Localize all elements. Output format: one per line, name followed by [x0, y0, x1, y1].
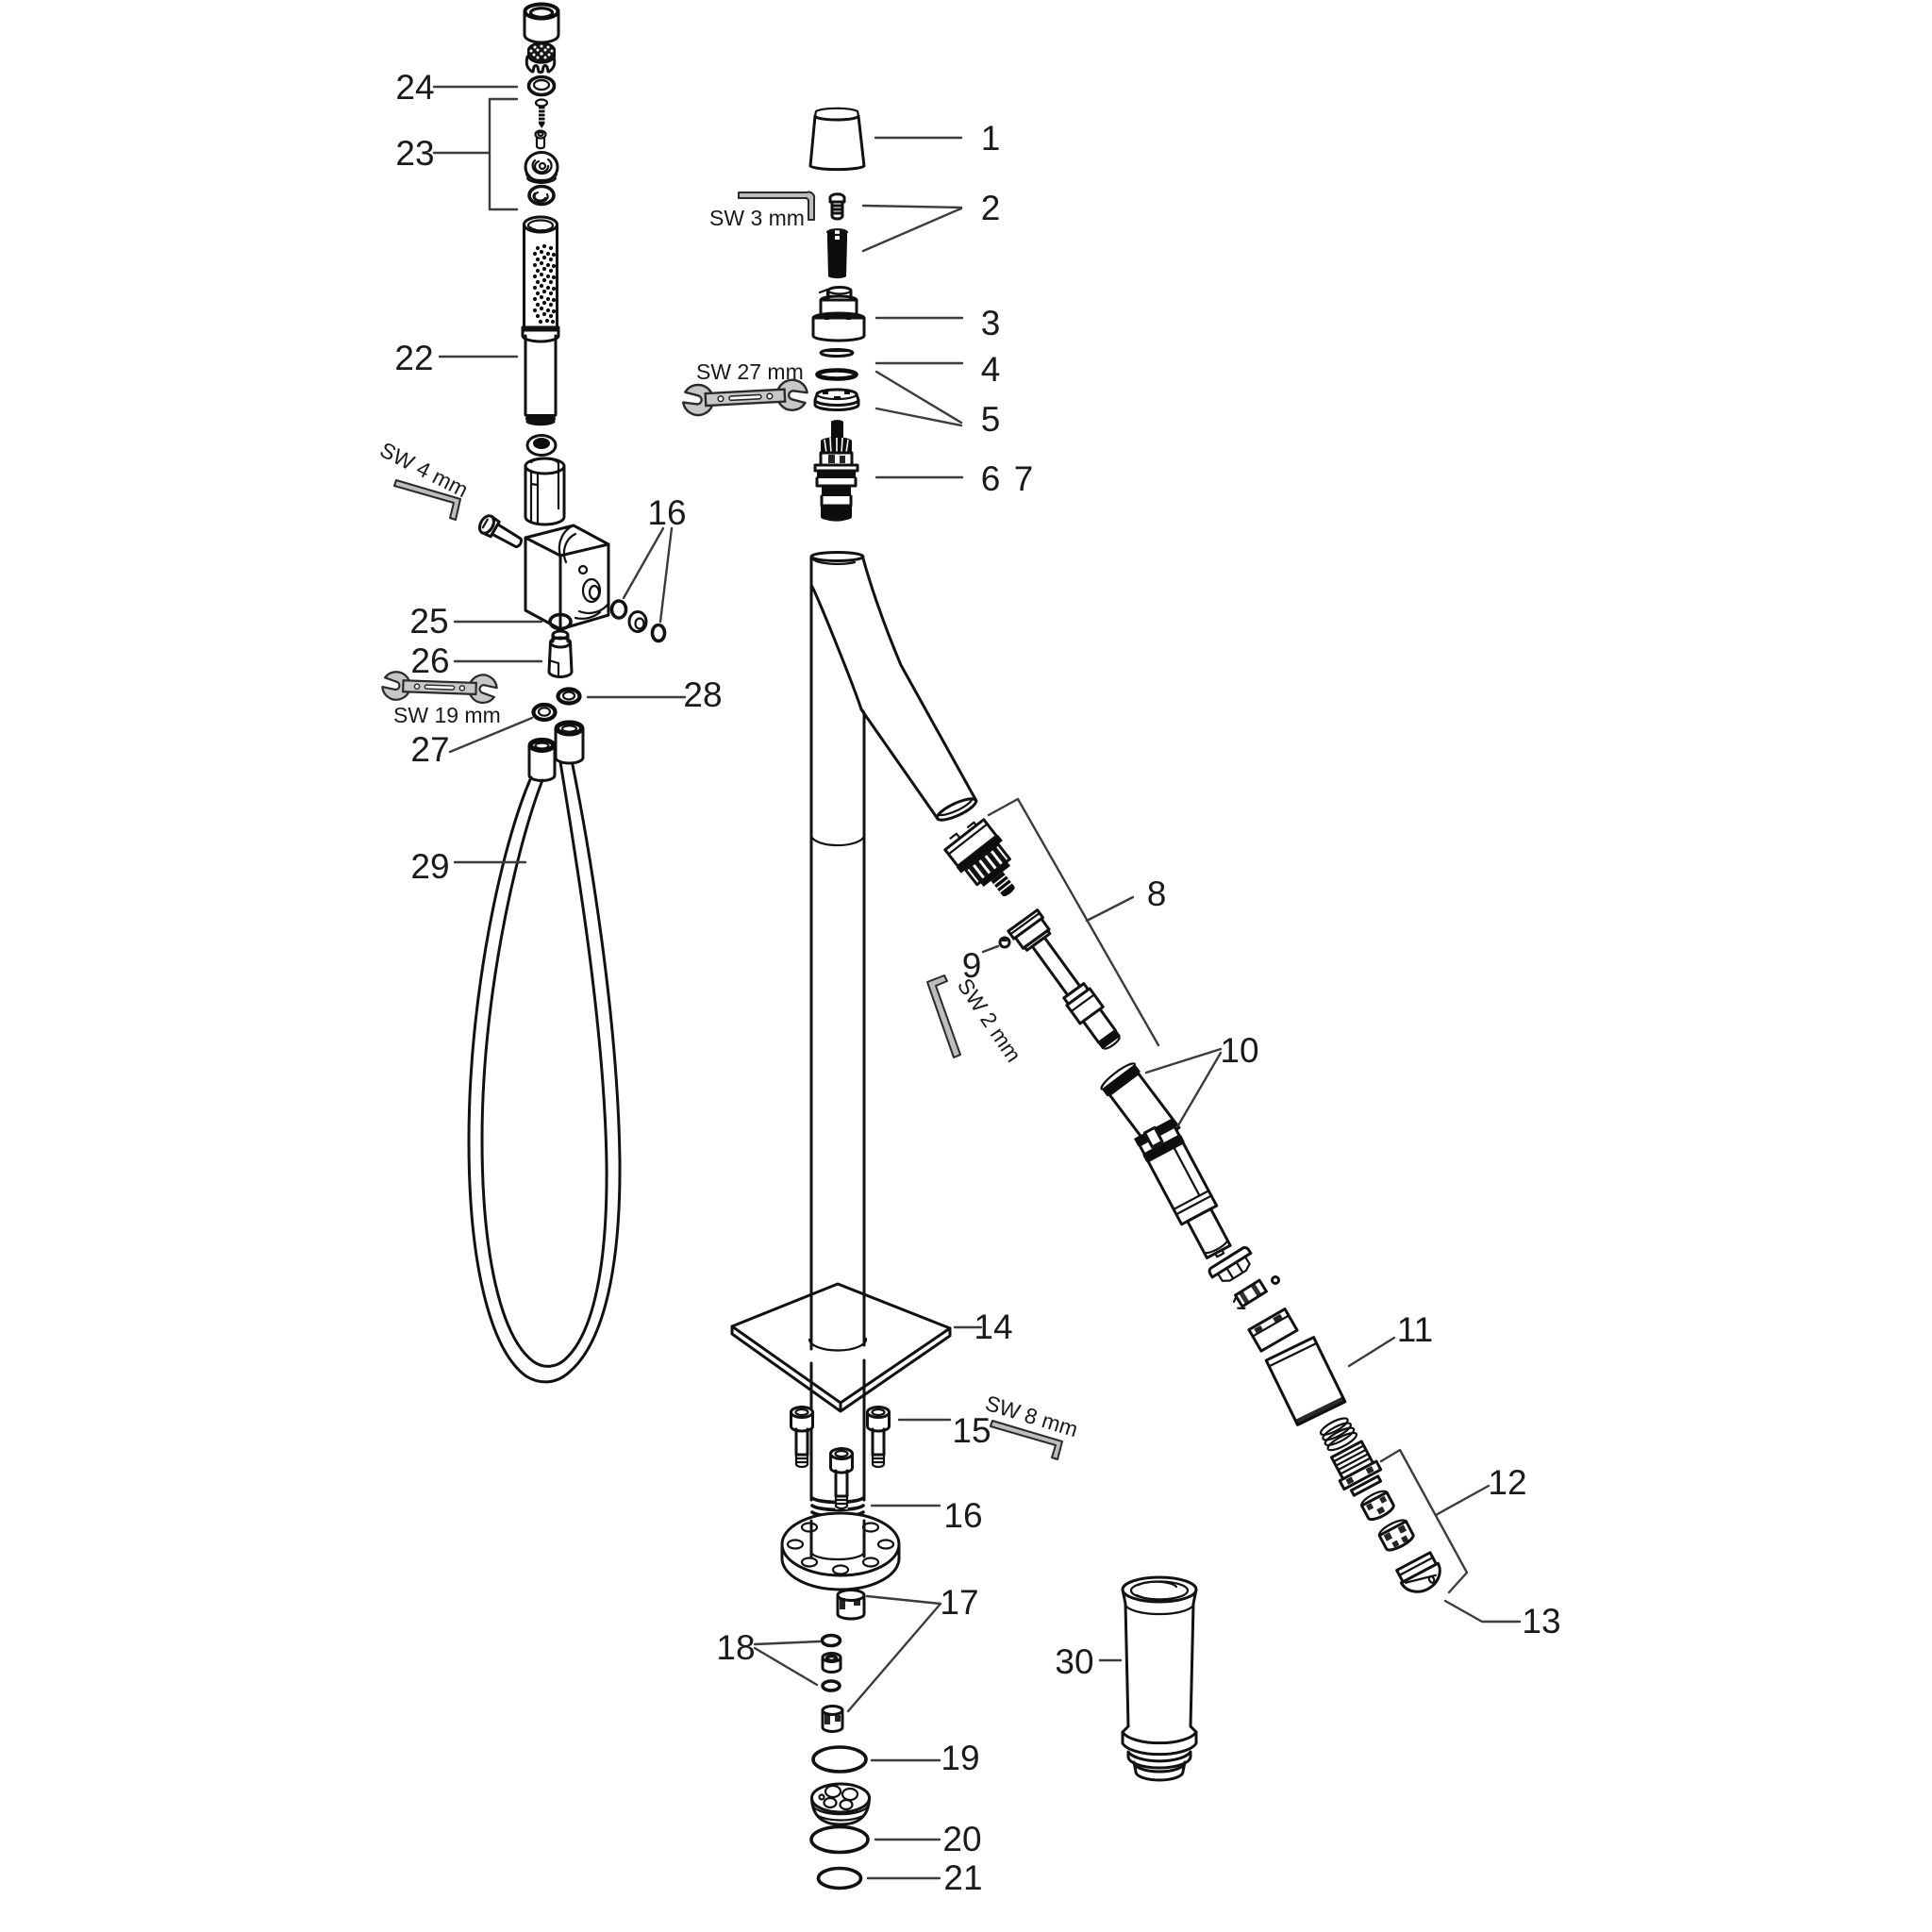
- svg-text:12: 12: [1488, 1463, 1526, 1502]
- svg-text:21: 21: [943, 1858, 982, 1897]
- svg-text:3: 3: [981, 304, 1001, 342]
- svg-text:13: 13: [1522, 1602, 1560, 1641]
- svg-text:SW 19 mm: SW 19 mm: [393, 703, 501, 727]
- svg-text:6: 6: [981, 459, 1001, 498]
- svg-text:2: 2: [981, 189, 1001, 227]
- svg-text:17: 17: [940, 1583, 978, 1622]
- svg-text:28: 28: [683, 675, 722, 714]
- svg-text:4: 4: [981, 350, 1001, 389]
- svg-text:10: 10: [1220, 1031, 1258, 1070]
- svg-text:26: 26: [410, 641, 449, 680]
- svg-text:16: 16: [943, 1496, 982, 1535]
- svg-text:18: 18: [716, 1628, 755, 1667]
- svg-text:11: 11: [1397, 1310, 1433, 1349]
- svg-text:22: 22: [394, 339, 433, 377]
- svg-text:24: 24: [395, 68, 434, 107]
- svg-text:5: 5: [981, 400, 1001, 439]
- svg-text:7: 7: [1014, 459, 1034, 498]
- svg-text:30: 30: [1055, 1642, 1093, 1681]
- svg-text:20: 20: [942, 1820, 981, 1858]
- svg-text:8: 8: [1147, 874, 1167, 913]
- svg-text:15: 15: [952, 1411, 991, 1450]
- svg-text:16: 16: [647, 493, 686, 532]
- svg-text:19: 19: [941, 1739, 979, 1777]
- svg-text:SW 3 mm: SW 3 mm: [709, 206, 805, 230]
- svg-text:23: 23: [395, 134, 434, 173]
- svg-text:1: 1: [981, 119, 1001, 158]
- svg-text:29: 29: [410, 847, 449, 886]
- svg-text:27: 27: [410, 730, 449, 769]
- svg-text:25: 25: [409, 602, 448, 641]
- svg-text:SW 27 mm: SW 27 mm: [696, 359, 804, 384]
